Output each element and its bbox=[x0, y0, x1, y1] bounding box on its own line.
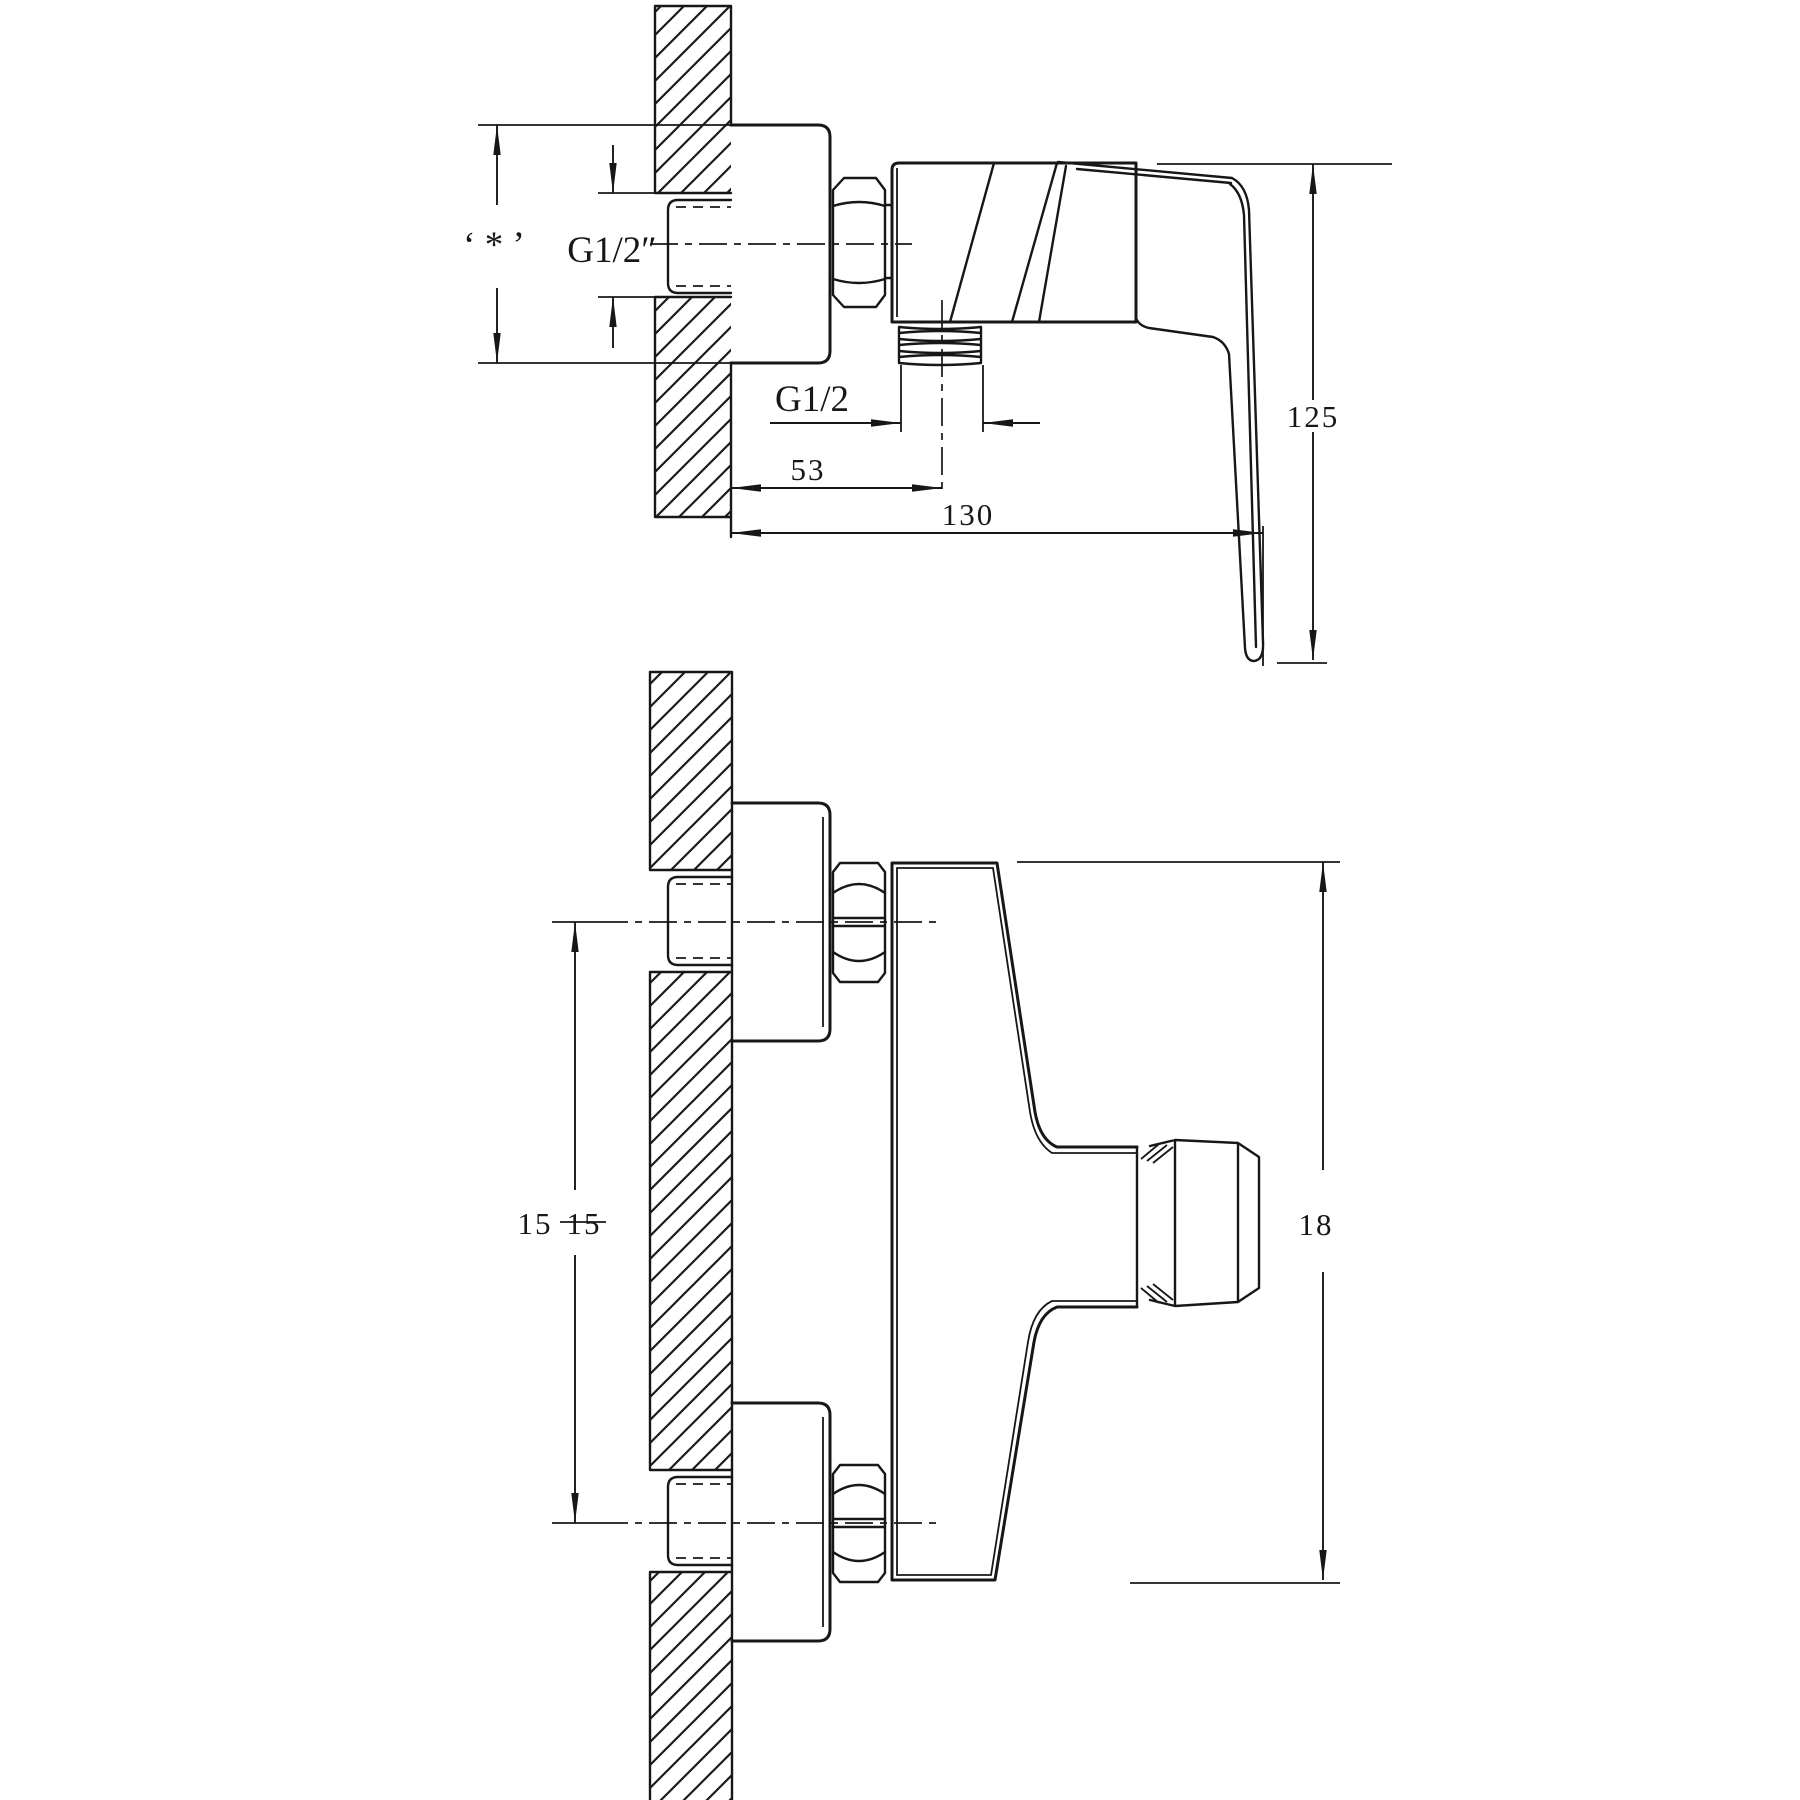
lower-pipe bbox=[668, 1477, 732, 1565]
wall-section bbox=[598, 6, 731, 537]
wall-flanges-front bbox=[732, 803, 830, 1641]
body-lever-joint-lines bbox=[950, 163, 1066, 322]
dimension-125: 125 bbox=[1157, 164, 1392, 663]
front-view: 15 15 18 bbox=[518, 672, 1341, 1800]
dimension-180-height: 18 bbox=[1017, 862, 1340, 1583]
body-inner-contour bbox=[897, 868, 1137, 1575]
lever-handle-side bbox=[1058, 162, 1263, 661]
dim-label-inlet-thread: G1/2″ bbox=[567, 230, 656, 271]
side-view: ‘ * ’ G1/2″ G1/2 53 130 125 bbox=[463, 6, 1392, 666]
dim-label-15-right: 15 bbox=[567, 1206, 602, 1241]
wall-hatch-2 bbox=[650, 972, 732, 1470]
dim-label-53: 53 bbox=[791, 452, 826, 487]
technical-drawing-canvas: ‘ * ’ G1/2″ G1/2 53 130 125 bbox=[0, 0, 1800, 1800]
dim-label-asterisk: ‘ * ’ bbox=[463, 225, 525, 266]
dimension-outlet-thread: G1/2 bbox=[770, 365, 1040, 432]
dim-label-18: 18 bbox=[1299, 1207, 1334, 1242]
dim-label-outlet-thread: G1/2 bbox=[775, 379, 849, 420]
nut-facet-lines bbox=[833, 202, 885, 283]
wall-hatch-upper bbox=[655, 6, 731, 193]
dimension-130: 130 bbox=[731, 497, 1263, 666]
lower-pipe-thread bbox=[676, 1484, 732, 1558]
dimension-150-spacing: 15 15 bbox=[518, 922, 607, 1523]
inlet-pipe-thread-hidden-lines bbox=[676, 207, 731, 286]
hub-chamfer-hatch bbox=[1141, 1144, 1173, 1303]
upper-pipe-thread bbox=[676, 884, 732, 958]
hub-cap-outline bbox=[1150, 1140, 1259, 1306]
nut-outline bbox=[833, 178, 885, 307]
wall-hatch-3 bbox=[650, 1572, 732, 1800]
body-outer-contour bbox=[892, 863, 1137, 1580]
inlet-pipe-outline bbox=[668, 200, 731, 293]
wall-hatch-lower bbox=[655, 297, 731, 517]
wall-hatch-1 bbox=[650, 672, 732, 870]
mixer-body-front bbox=[892, 863, 1137, 1580]
thread-ridges bbox=[899, 327, 981, 365]
outlet-thread bbox=[899, 327, 981, 365]
dimension-inlet-thread: G1/2″ bbox=[567, 145, 656, 348]
dim-label-125: 125 bbox=[1287, 399, 1340, 434]
mixer-body-side bbox=[892, 163, 1136, 322]
connection-nut bbox=[833, 178, 892, 307]
drawing-svg: ‘ * ’ G1/2″ G1/2 53 130 125 bbox=[0, 0, 1800, 1800]
lower-flange bbox=[732, 1403, 830, 1641]
handle-inner-edge bbox=[1230, 184, 1256, 647]
upper-pipe bbox=[668, 877, 732, 965]
wall-section-front bbox=[650, 672, 732, 1800]
dim-label-130: 130 bbox=[942, 497, 995, 532]
extension-lines bbox=[1157, 164, 1392, 663]
connection-nuts-front bbox=[833, 863, 885, 1582]
dim-label-15-left: 15 bbox=[518, 1206, 553, 1241]
body-outline bbox=[892, 163, 1136, 322]
inlet-pipe bbox=[668, 200, 731, 293]
dimension-53: 53 bbox=[731, 452, 942, 488]
extension-lines bbox=[1017, 862, 1340, 1583]
handle-hub-front bbox=[1137, 1140, 1259, 1307]
handle-top-edges bbox=[1058, 162, 1232, 183]
